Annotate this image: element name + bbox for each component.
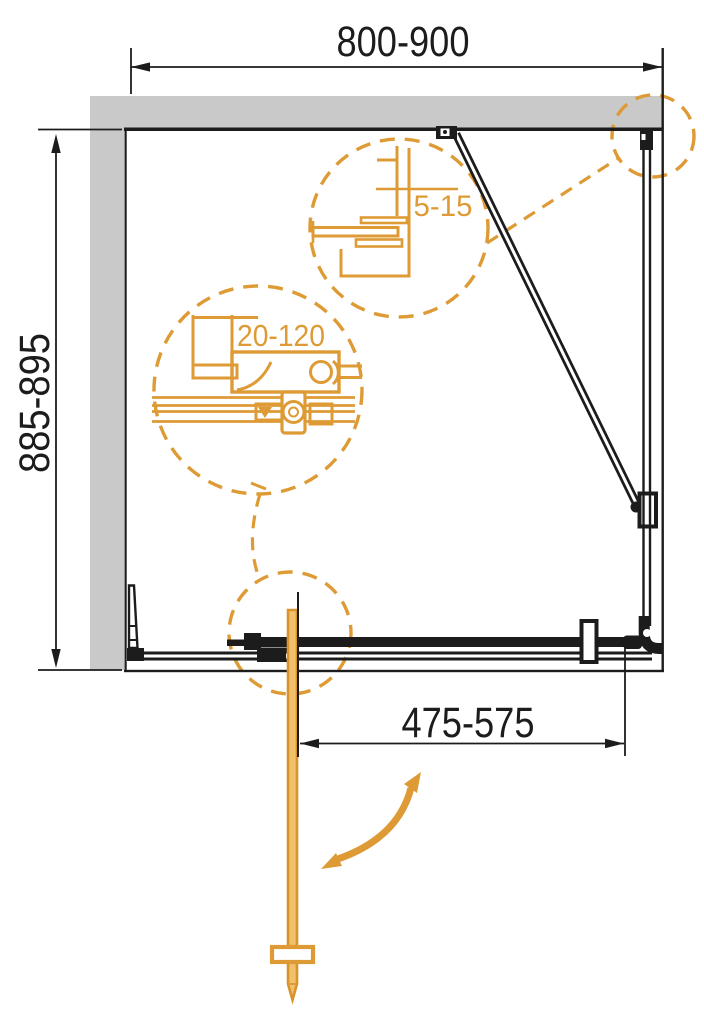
shower-enclosure-top-view-drawing: 5-15 20-120 xyxy=(0,0,704,1024)
leader-line-pivot xyxy=(252,494,260,575)
roller xyxy=(311,362,332,383)
panel-bracket-slot xyxy=(642,134,646,140)
wall-face-top xyxy=(124,128,663,132)
arrowhead-right xyxy=(643,62,662,71)
arrowhead-left xyxy=(300,739,319,748)
panel-glass-line xyxy=(642,149,644,626)
door-panel-open xyxy=(272,610,313,1000)
wall-top xyxy=(90,96,663,128)
drawing-canvas: 5-15 20-120 xyxy=(0,0,704,1024)
detail-callouts: 5-15 20-120 xyxy=(152,95,694,694)
door-lower-hinge-block xyxy=(640,494,657,527)
leader-tick xyxy=(251,483,266,489)
swing-arrowhead-upper xyxy=(404,772,421,793)
wall-gap-profile-detail: 5-15 xyxy=(313,146,473,276)
arrowhead-down xyxy=(51,649,60,668)
bottom-rail-front xyxy=(130,652,652,655)
depth-range-label: 885-895 xyxy=(11,333,59,473)
fixed-panel xyxy=(640,128,663,649)
arrowhead-right xyxy=(605,739,624,748)
cam-housing xyxy=(282,392,305,433)
roller-arc xyxy=(333,361,338,384)
profile-bar xyxy=(361,218,407,224)
swing-arrow xyxy=(321,772,421,869)
pivot-bracket-upper xyxy=(244,633,261,650)
frame-bottom-edge xyxy=(124,670,664,672)
enclosure-frame xyxy=(124,48,664,672)
panel-glass-line xyxy=(649,149,651,626)
wall-profile-left xyxy=(127,586,144,662)
open-door-glass xyxy=(288,610,297,1000)
wall-face-left xyxy=(125,128,127,671)
wall-left xyxy=(90,96,124,670)
door-handle xyxy=(272,947,313,962)
dimension-bottom: 475-575 xyxy=(298,592,625,757)
profile-bar xyxy=(313,228,398,237)
door-glass-core xyxy=(456,134,637,505)
rail-lines xyxy=(152,398,355,422)
corner-bracket-pin xyxy=(643,629,651,637)
door-panel-closed xyxy=(436,126,656,527)
bottom-rail-back xyxy=(130,658,652,661)
swing-arc xyxy=(338,788,411,859)
door-top-hinge-pin xyxy=(443,130,447,134)
adjustment-range-label: 20-120 xyxy=(237,318,325,353)
door-width-range-label: 475-575 xyxy=(402,699,535,747)
width-range-label: 800-900 xyxy=(337,18,470,66)
frame-right-edge xyxy=(662,48,664,672)
profile-bar xyxy=(356,240,402,247)
wall-profile-body xyxy=(129,586,138,649)
adjuster-hook xyxy=(237,362,271,390)
wall-gap-range-label: 5-15 xyxy=(414,190,473,223)
bottom-sill-assembly xyxy=(130,621,652,662)
arrowhead-up xyxy=(51,134,60,153)
clamp-block xyxy=(582,621,597,662)
dimension-top: 800-900 xyxy=(131,18,662,94)
arrowhead-left xyxy=(131,62,150,71)
profile-channel xyxy=(341,148,409,276)
